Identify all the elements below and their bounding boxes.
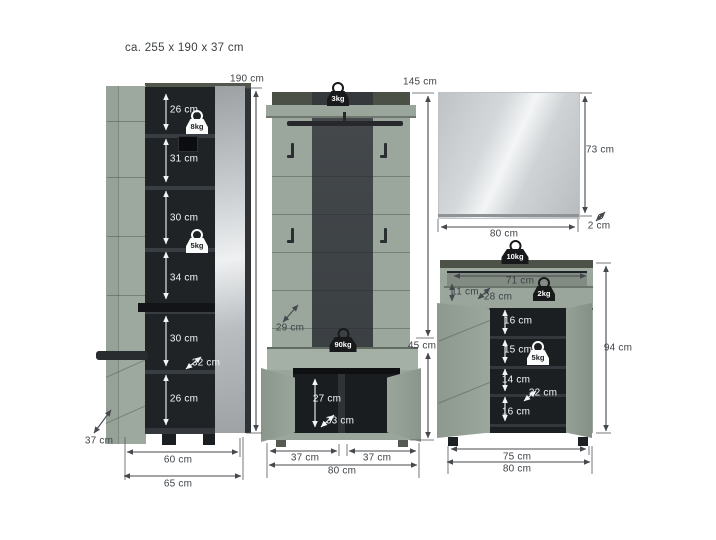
cabinet-shelf <box>490 336 566 339</box>
wardrobe-height-label: 190 cm <box>230 74 264 85</box>
wardrobe-pullout-shelf <box>138 303 218 312</box>
drawer-width-label: 71 cm <box>506 276 534 287</box>
wardrobe-inner-drawer <box>178 136 198 152</box>
bench-foot <box>276 440 286 447</box>
panel-shelf-depth-label: 29 cm <box>276 323 304 334</box>
mirror-depth-label: 2 cm <box>588 221 610 232</box>
hanging-rail-bracket <box>343 112 346 122</box>
coat-hook <box>287 155 294 158</box>
cabinet-shelf <box>490 366 566 369</box>
bench-inner-depth-label: 33 cm <box>326 416 354 427</box>
wardrobe-mirror-door <box>215 86 245 433</box>
coat-hook <box>380 240 387 243</box>
wardrobe-pullout-rod <box>96 351 148 360</box>
wardrobe-section-label: 30 cm <box>170 213 198 224</box>
wardrobe-section-label: 31 cm <box>170 154 198 165</box>
set-dimensions-title: ca. 255 x 190 x 37 cm <box>125 42 244 54</box>
bench-right-door <box>387 368 421 442</box>
weight-badge-2kg: 2kg <box>533 277 555 301</box>
furniture-dimension-diagram: ca. 255 x 190 x 37 cm <box>0 0 716 540</box>
panel-height-label: 145 cm <box>403 77 437 88</box>
groove-line <box>272 252 410 253</box>
panel-top-shelf-front <box>266 105 416 118</box>
weight-badge-10kg: 10kg <box>502 240 529 264</box>
wardrobe-inner-width-label: 60 cm <box>164 455 192 466</box>
cabinet-width-label: 80 cm <box>503 464 531 475</box>
wardrobe-shelf <box>145 370 215 374</box>
coat-hook <box>380 155 387 158</box>
wardrobe-depth-label: 37 cm <box>85 436 113 447</box>
bench-inner-height-label: 27 cm <box>313 394 341 405</box>
weight-label: 8kg <box>186 119 208 134</box>
groove-line <box>107 236 145 237</box>
wardrobe-mirror-door-edge <box>245 88 251 433</box>
drawer-depth-label: 28 cm <box>484 292 512 303</box>
cabinet-right-door <box>566 303 592 438</box>
cabinet-inner-depth-label: 32 cm <box>529 388 557 399</box>
bench-door-right-label: 37 cm <box>363 453 391 464</box>
bench-left-door <box>261 368 295 442</box>
groove-line <box>107 121 145 122</box>
wardrobe-left-door <box>106 86 146 444</box>
groove-line <box>107 295 145 296</box>
wardrobe-inner-depth-label: 32 cm <box>192 358 220 369</box>
wardrobe-shelf <box>145 186 215 190</box>
bench-door-left-label: 37 cm <box>291 453 319 464</box>
panel-center-band <box>312 92 373 347</box>
wardrobe-section-label: 26 cm <box>170 394 198 405</box>
cabinet-section-label: 14 cm <box>502 375 530 386</box>
cabinet-section-label: 16 cm <box>504 316 532 327</box>
weight-label: 5kg <box>186 238 208 253</box>
wardrobe-section-label: 34 cm <box>170 273 198 284</box>
wardrobe-section-label: 30 cm <box>170 334 198 345</box>
weight-badge-5kg-wardrobe: 5kg <box>186 229 208 253</box>
mirror-height-label: 73 cm <box>586 145 614 156</box>
weight-label: 10kg <box>502 249 529 264</box>
wardrobe-width-label: 65 cm <box>164 479 192 490</box>
wardrobe-foot <box>162 434 176 445</box>
weight-badge-3kg: 3kg <box>327 82 349 106</box>
coat-hook <box>287 240 294 243</box>
drawer-height-label: 11 cm <box>451 287 479 298</box>
mirror-width-label: 80 cm <box>490 229 518 240</box>
cabinet-height-label: 94 cm <box>604 343 632 354</box>
bench-height-label: 45 cm <box>408 341 436 352</box>
wardrobe-foot <box>203 434 215 445</box>
cabinet-section-label: 16 cm <box>502 407 530 418</box>
cabinet-foot <box>448 437 458 446</box>
groove-line <box>272 176 410 177</box>
cabinet-inner-width-label: 75 cm <box>503 452 531 463</box>
wall-mirror <box>438 92 580 219</box>
weight-label: 3kg <box>327 91 349 106</box>
cabinet-shelf <box>490 424 566 427</box>
weight-label: 2kg <box>533 286 555 301</box>
cabinet-foot <box>578 437 588 446</box>
groove-line <box>272 214 410 215</box>
groove-line <box>272 290 410 291</box>
bench-width-label: 80 cm <box>328 466 356 477</box>
weight-badge-90kg: 90kg <box>330 328 357 352</box>
wall-mirror-bottom-edge <box>438 214 579 217</box>
bench-foot <box>398 440 408 447</box>
groove-line <box>107 177 145 178</box>
bench-opening-lintel <box>293 368 400 374</box>
cabinet-section-label: 15 cm <box>504 345 532 356</box>
weight-label: 90kg <box>330 337 357 352</box>
wardrobe-section-label: 26 cm <box>170 105 198 116</box>
